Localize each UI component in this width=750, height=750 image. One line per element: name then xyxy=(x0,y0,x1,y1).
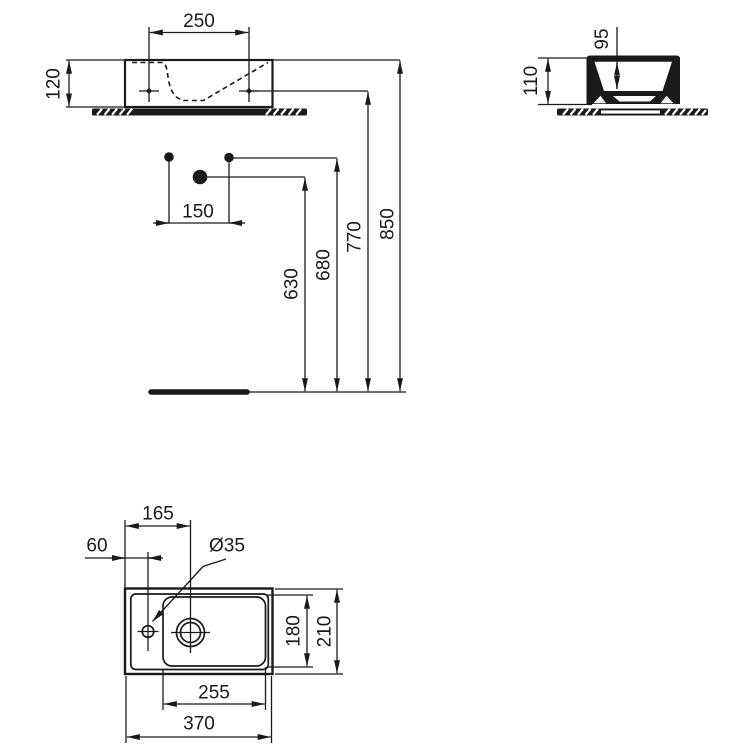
tap-hole-centerlines xyxy=(138,552,159,651)
dim-770-label: 770 xyxy=(345,221,366,253)
fixing-hole-centers xyxy=(146,88,252,94)
fixing-hole-markers xyxy=(139,27,259,102)
dim-60-label: 60 xyxy=(86,536,107,557)
front-view: 250 120 xyxy=(44,11,308,116)
dim-850-label: 850 xyxy=(378,208,399,240)
side-view: 110 95 xyxy=(521,27,708,116)
bowl-hidden-profile xyxy=(132,63,268,101)
extension-lines xyxy=(538,58,592,105)
dim-255-label: 255 xyxy=(198,683,230,704)
dim-630-label: 630 xyxy=(282,268,303,300)
dim-250-label: 250 xyxy=(183,11,215,32)
dim-d35-label: Ø35 xyxy=(209,536,245,557)
wall-shelf-side-gap xyxy=(601,110,660,113)
dim-165-label: 165 xyxy=(142,504,174,525)
plan-view: 165 60 Ø35 180 210 255 370 xyxy=(85,504,343,744)
extension-lines xyxy=(66,60,125,107)
dim-370-label: 370 xyxy=(183,714,215,735)
dim-120-label: 120 xyxy=(44,68,65,100)
dim-110-label: 110 xyxy=(521,66,542,96)
dim-95-label: 95 xyxy=(592,28,613,49)
basin-section xyxy=(587,56,681,105)
bowl-outline xyxy=(163,597,266,666)
basin-outline-front xyxy=(125,60,273,107)
dim-180-label: 180 xyxy=(284,615,305,647)
dim-680-label: 680 xyxy=(314,249,335,281)
washbasin-dimension-drawing: 250 120 110 95 150 630 680 770 xyxy=(0,0,750,750)
waste-hole-centerlines xyxy=(171,520,210,653)
technical-drawing-page: 250 120 110 95 150 630 680 770 xyxy=(0,0,750,750)
dim-210-label: 210 xyxy=(315,616,336,648)
dim-150-label: 150 xyxy=(182,202,214,223)
